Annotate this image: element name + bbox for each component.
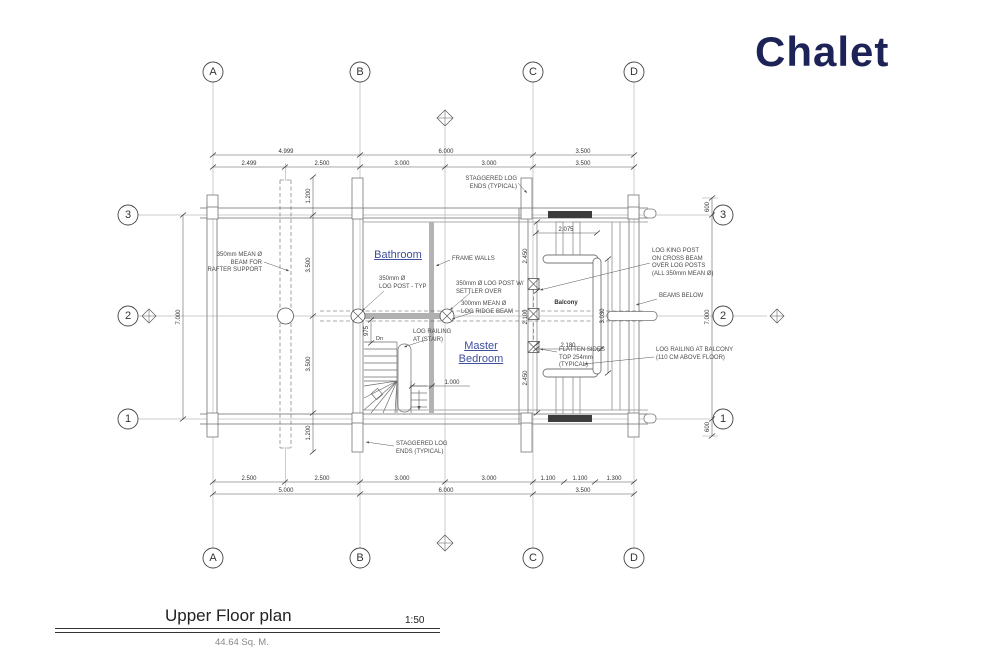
dim-label: 2.100: [523, 309, 529, 325]
grid-col-a-bottom: A: [209, 552, 217, 564]
dim-label: 3.000: [481, 161, 497, 167]
dim-label: 1.200: [306, 425, 312, 441]
stair-railing: [398, 344, 411, 412]
dim-label: 6.000: [438, 488, 454, 494]
page-title: Chalet: [755, 28, 889, 76]
section-marker-icon: [437, 535, 453, 551]
dim-label: 3.500: [575, 161, 591, 167]
winder-treads: [364, 381, 397, 413]
dim-label: 2.075: [558, 227, 574, 233]
annotation-staggered-log-top: STAGGERED LOG ENDS (TYPICAL): [455, 176, 517, 191]
balcony-label: Balcony: [554, 300, 578, 306]
dim-label: 2.500: [314, 161, 330, 167]
dim-label: 3.000: [394, 476, 410, 482]
dim-label: 4.999: [278, 149, 294, 155]
section-marker-icon: [437, 110, 453, 126]
dim-label: 3.500: [306, 356, 312, 372]
annotation-settler-over: 350mm Ø LOG POST W/ SETTLER OVER: [456, 281, 524, 296]
floor-plan-sheet: A B C D A B C D 3 2 1 3 2 1: [0, 0, 1000, 667]
dim-label: 600: [705, 421, 711, 432]
dim-label: 2.450: [523, 370, 529, 386]
dim-label: 2.450: [523, 248, 529, 264]
annotation-frame-walls: FRAME WALLS: [452, 256, 495, 264]
title-rule: [55, 628, 440, 633]
dim-label: 3.500: [575, 149, 591, 155]
section-marker-icon: [142, 309, 156, 323]
annotation-rafter-beam: 350mm MEAN Ø BEAM FOR RAFTER SUPPORT: [196, 252, 262, 275]
annotation-balcony-railing: LOG RAILING AT BALCONY (110 CM ABOVE FLO…: [656, 347, 733, 362]
grid-col-d-top: D: [630, 66, 638, 78]
room-label-bathroom: Bathroom: [363, 249, 433, 262]
dim-label: 1.100: [572, 476, 588, 482]
grid-row-3-right: 3: [720, 209, 726, 221]
grid-col-a-top: A: [209, 66, 217, 78]
grid-row-1-right: 1: [720, 413, 726, 425]
dim-label: 3.000: [394, 161, 410, 167]
annotation-stair-railing: LOG RAILING AT (STAIR): [413, 329, 451, 344]
dim-label: 6.000: [438, 149, 454, 155]
dim-label: 2.499: [241, 161, 257, 167]
dim-label: 7.000: [705, 309, 711, 325]
grid-row-3-left: 3: [125, 209, 131, 221]
drawing-title: Upper Floor plan: [165, 606, 292, 626]
room-label-master-bedroom: Master Bedroom: [443, 340, 519, 366]
dim-label: 3.500: [575, 488, 591, 494]
drawing-area: 44.64 Sq. M.: [215, 637, 269, 648]
dim-label: 3.000: [481, 476, 497, 482]
floor-plan-drawing: A B C D A B C D 3 2 1 3 2 1: [0, 0, 1000, 667]
log-post-circle: [278, 308, 294, 324]
grid-row-2-left: 2: [125, 310, 131, 322]
annotation-staggered-log-bottom: STAGGERED LOG ENDS (TYPICAL): [396, 441, 448, 456]
rafter-support-beam: [278, 180, 294, 448]
dim-label: 3.030: [600, 308, 606, 324]
dim-label: 2.500: [241, 476, 257, 482]
annotation-flatten-sides: FLATTEN SIDES TOP 254mm (TYPICAL): [559, 347, 605, 370]
dim-label: 7.000: [176, 309, 182, 325]
annotation-king-post: LOG KING POST ON CROSS BEAM OVER LOG POS…: [652, 248, 718, 278]
log-ends-right: [607, 209, 657, 423]
grid-col-c-top: C: [529, 66, 537, 78]
grid-col-d-bottom: D: [630, 552, 638, 564]
annotation-beams-below: BEAMS BELOW: [659, 293, 703, 301]
dim-label: 5.000: [278, 488, 294, 494]
dim-label: 975: [364, 325, 370, 336]
dim-label: 1.000: [444, 380, 460, 386]
grid-col-b-top: B: [356, 66, 363, 78]
dim-label: 1.200: [306, 188, 312, 204]
section-marker-icon: [770, 309, 784, 323]
stair: [364, 342, 427, 413]
stair-down-label: Dn: [376, 336, 383, 342]
grid-row-2-right: 2: [720, 310, 726, 322]
annotation-log-post-typ: 350mm Ø LOG POST - TYP: [379, 276, 426, 291]
dim-label: 1.300: [606, 476, 622, 482]
grid-col-c-bottom: C: [529, 552, 537, 564]
annotation-ridge-beam: 300mm MEAN Ø LOG RIDGE BEAM: [461, 301, 513, 316]
dim-label: 1.100: [540, 476, 556, 482]
dim-label: 2.500: [314, 476, 330, 482]
dim-label: 3.500: [306, 257, 312, 273]
grid-col-b-bottom: B: [356, 552, 363, 564]
dim-label: 600: [705, 201, 711, 212]
grid-row-1-left: 1: [125, 413, 131, 425]
drawing-scale: 1:50: [405, 615, 424, 626]
king-post-x-icon: [528, 279, 539, 353]
